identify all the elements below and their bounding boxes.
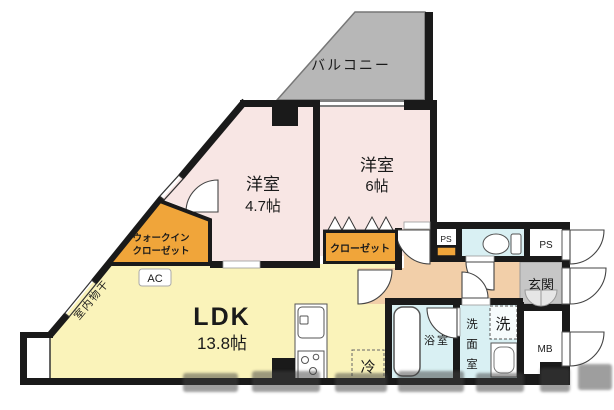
washroom-door-opening [462,298,490,305]
toilet-door-opening [466,256,494,262]
toilet-tank [511,234,521,254]
floor-plan: バルコニー 洋室 6帖 洋室 4.7帖 ウォークイン クローゼット クローゼット… [0,0,614,410]
bathtub [394,307,420,376]
ps-right-label: PS [539,240,553,251]
entrance-door-opening [562,268,570,304]
shaft-box [437,247,456,256]
wic-label-line1: ウォークイン [132,233,189,244]
meter-box-label: MB [538,344,553,355]
bedroom6-label: 洋室 [360,156,394,175]
balcony-label: バルコニー [311,57,391,73]
kitchen-faucet [300,316,308,324]
closet-label: クローゼット [330,242,390,255]
wic-label-line2: クローゼット [132,245,189,257]
washer-label: 洗 [495,316,510,333]
washroom-label-c1: 洗 [466,318,478,331]
sliding-door-opening [223,261,260,268]
bathroom-label: 浴室 [424,333,450,347]
floor-plan-svg: バルコニー 洋室 6帖 洋室 4.7帖 ウォークイン クローゼット クローゼット… [0,0,614,410]
bedroom47-label: 洋室 [246,175,280,194]
toilet-bowl [483,234,509,254]
washbasin [491,343,517,377]
ldk-label: LDK [193,303,250,331]
ps-hatch-opening [562,230,570,260]
ac-label: AC [147,273,162,285]
entrance-label: 玄関 [528,277,554,292]
washroom-label-c3: 室 [466,357,478,371]
washroom-label-c2: 面 [466,339,478,351]
ps-left-label: PS [440,234,452,244]
balcony-window [320,100,404,107]
bedroom6-door-opening [404,222,430,229]
ldk-size: 13.8帖 [197,334,247,353]
mb-hatch-opening [562,332,570,366]
corner-void [27,338,50,378]
bedroom47-size: 4.7帖 [245,198,281,215]
bedroom6-size: 6帖 [365,178,388,195]
